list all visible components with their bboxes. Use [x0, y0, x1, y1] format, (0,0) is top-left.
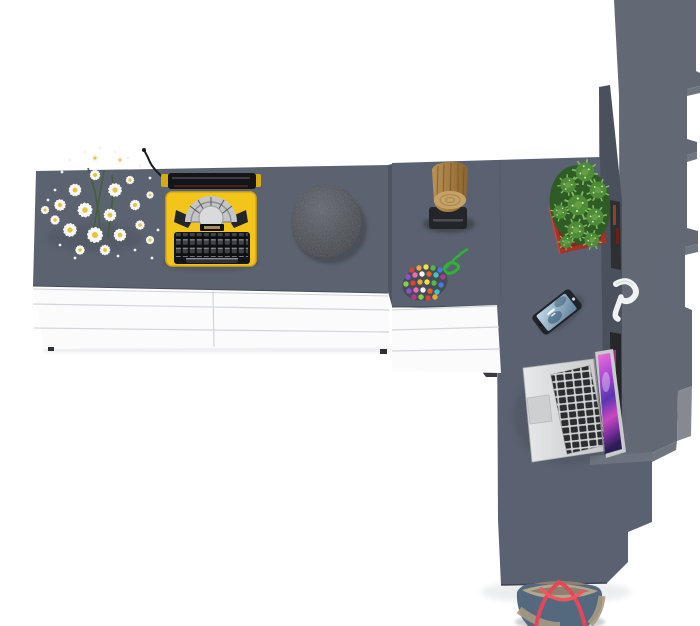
desk-drawer-face: [392, 305, 501, 373]
tote-bag: [515, 581, 605, 626]
cabinet-foot: [48, 347, 54, 351]
sideboard-drawer-face: [33, 287, 390, 349]
platen-carriage: [168, 173, 256, 189]
desk-drawers: [392, 305, 501, 377]
desk-unit-seam: [388, 164, 392, 306]
sideboard-drawers: [33, 287, 390, 354]
render-canvas: [0, 0, 700, 626]
log-cut-face: [434, 191, 466, 209]
platen-knob: [161, 174, 169, 187]
cabinet-foot: [380, 349, 387, 354]
trackpad: [527, 395, 552, 424]
